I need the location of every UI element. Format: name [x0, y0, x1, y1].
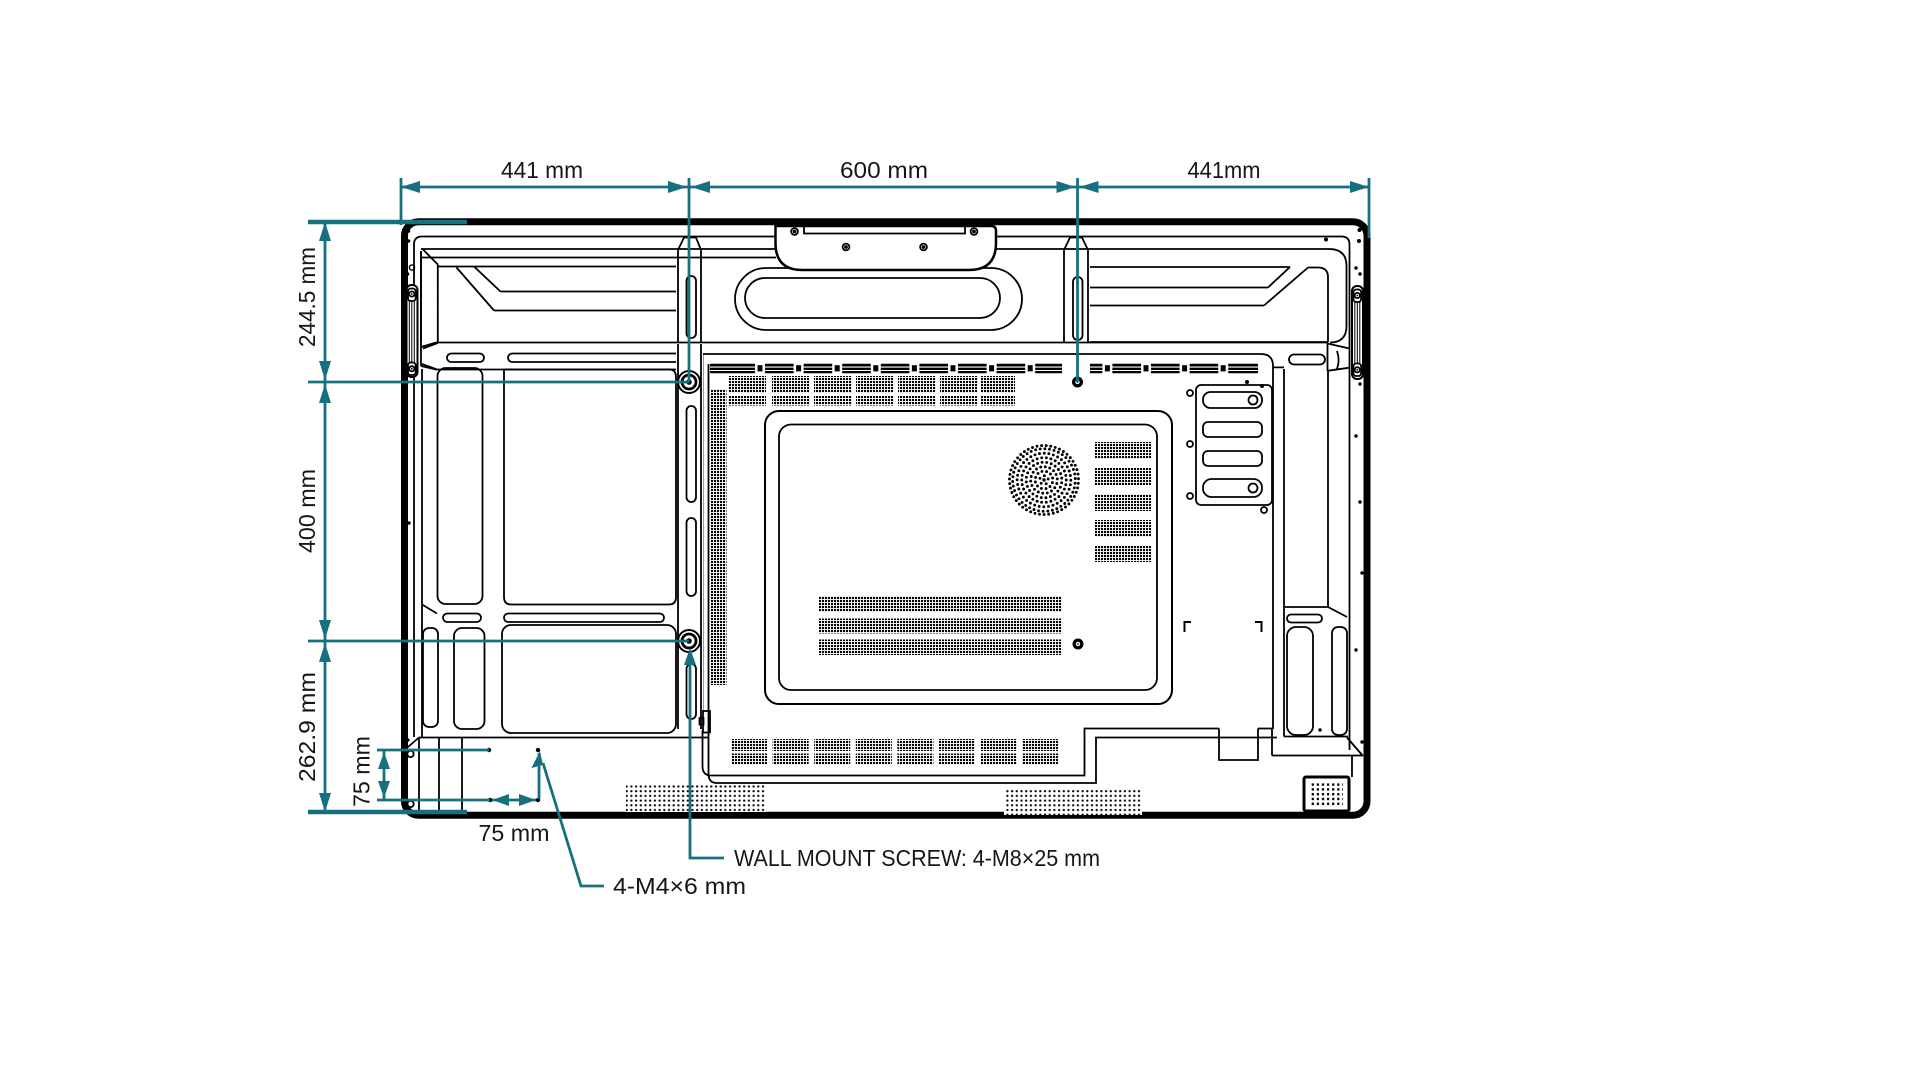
- svg-text:75 mm: 75 mm: [479, 820, 550, 846]
- svg-text:400 mm: 400 mm: [294, 469, 320, 553]
- svg-text:262.9 mm: 262.9 mm: [294, 672, 320, 782]
- svg-text:441 mm: 441 mm: [501, 157, 583, 183]
- svg-text:WALL MOUNT SCREW: 4-M8×25 mm: WALL MOUNT SCREW: 4-M8×25 mm: [734, 845, 1100, 871]
- svg-text:600 mm: 600 mm: [840, 157, 928, 183]
- svg-text:244.5 mm: 244.5 mm: [294, 247, 320, 347]
- svg-text:75 mm: 75 mm: [349, 736, 375, 807]
- svg-text:441mm: 441mm: [1188, 157, 1261, 183]
- svg-text:4-M4×6 mm: 4-M4×6 mm: [613, 873, 746, 899]
